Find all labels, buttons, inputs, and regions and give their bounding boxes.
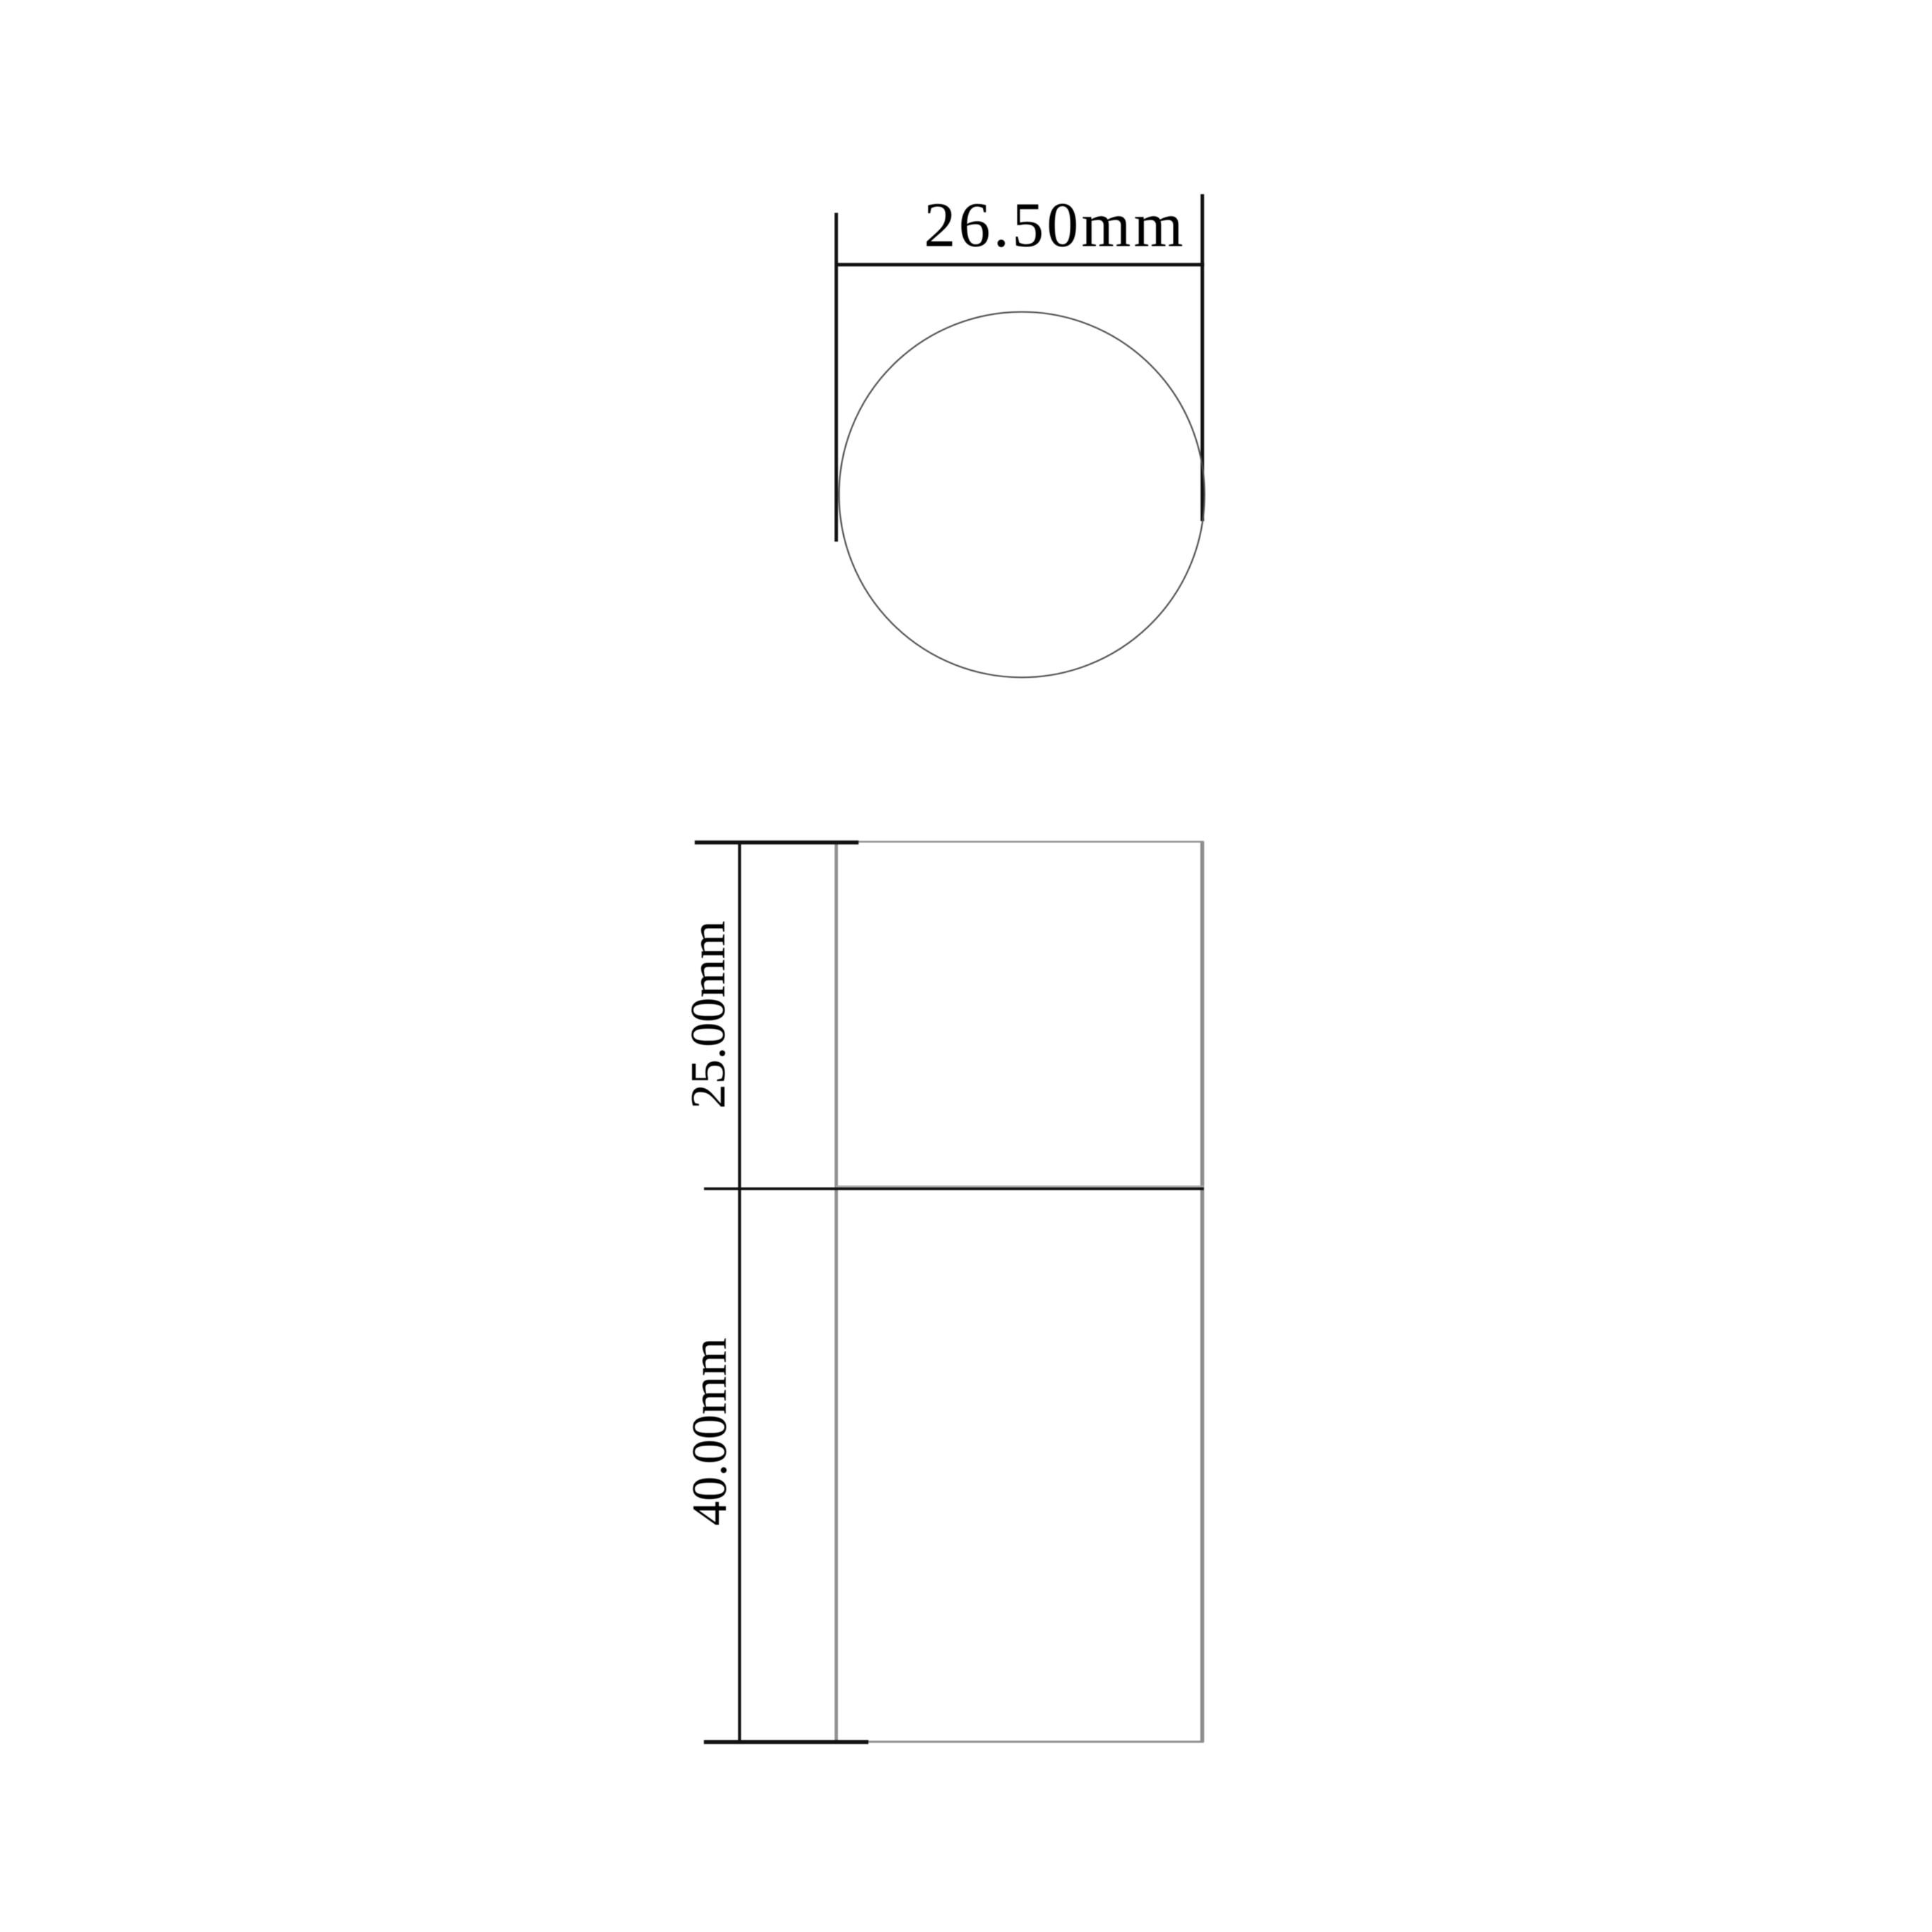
svg-text:40.00mm: 40.00mm	[683, 1337, 737, 1525]
svg-text:26.50mm: 26.50mm	[924, 191, 1186, 261]
svg-text:25.00mm: 25.00mm	[681, 921, 736, 1109]
